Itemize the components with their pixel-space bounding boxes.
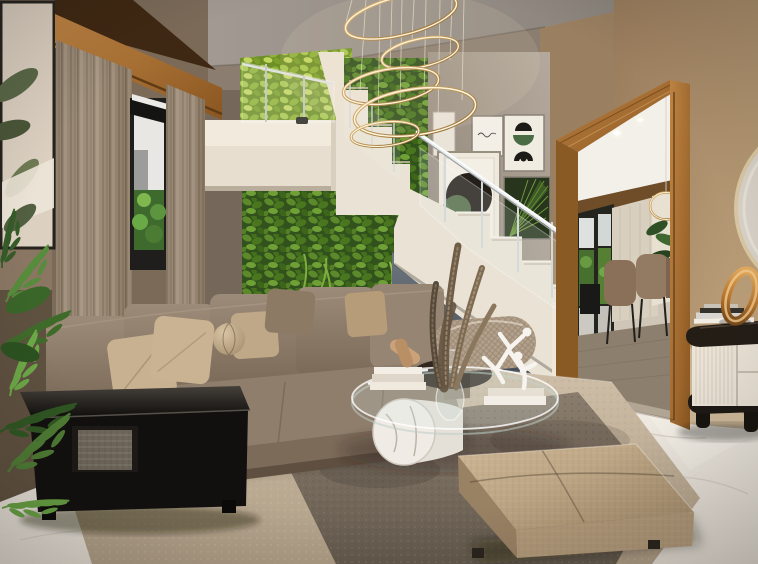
living-room-render (0, 0, 758, 564)
vignette (0, 0, 758, 564)
